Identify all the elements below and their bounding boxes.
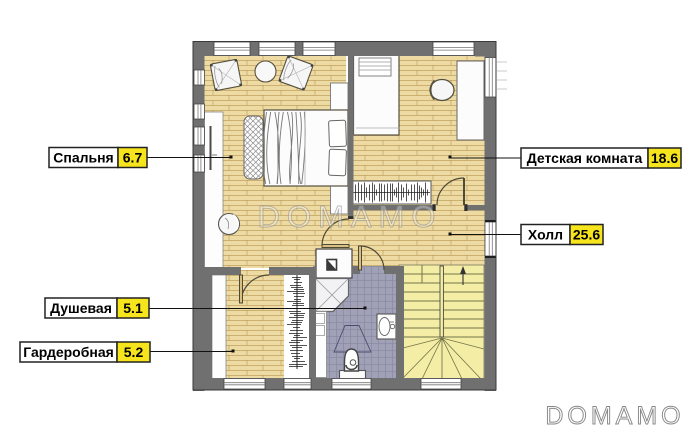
svg-text:Холл: Холл (528, 227, 563, 243)
svg-text:Гардеробная: Гардеробная (23, 344, 114, 360)
svg-text:DOMAMO: DOMAMO (545, 402, 684, 430)
svg-text:5.1: 5.1 (123, 300, 143, 316)
svg-text:5.2: 5.2 (124, 344, 144, 360)
svg-text:Душевая: Душевая (50, 300, 112, 316)
svg-text:18.6: 18.6 (651, 150, 678, 166)
svg-text:25.6: 25.6 (573, 227, 600, 243)
svg-text:Спальня: Спальня (53, 150, 113, 166)
svg-text:Детская комната: Детская комната (527, 150, 643, 166)
svg-text:6.7: 6.7 (123, 150, 143, 166)
svg-text:DOMAMO: DOMAMO (258, 199, 443, 234)
